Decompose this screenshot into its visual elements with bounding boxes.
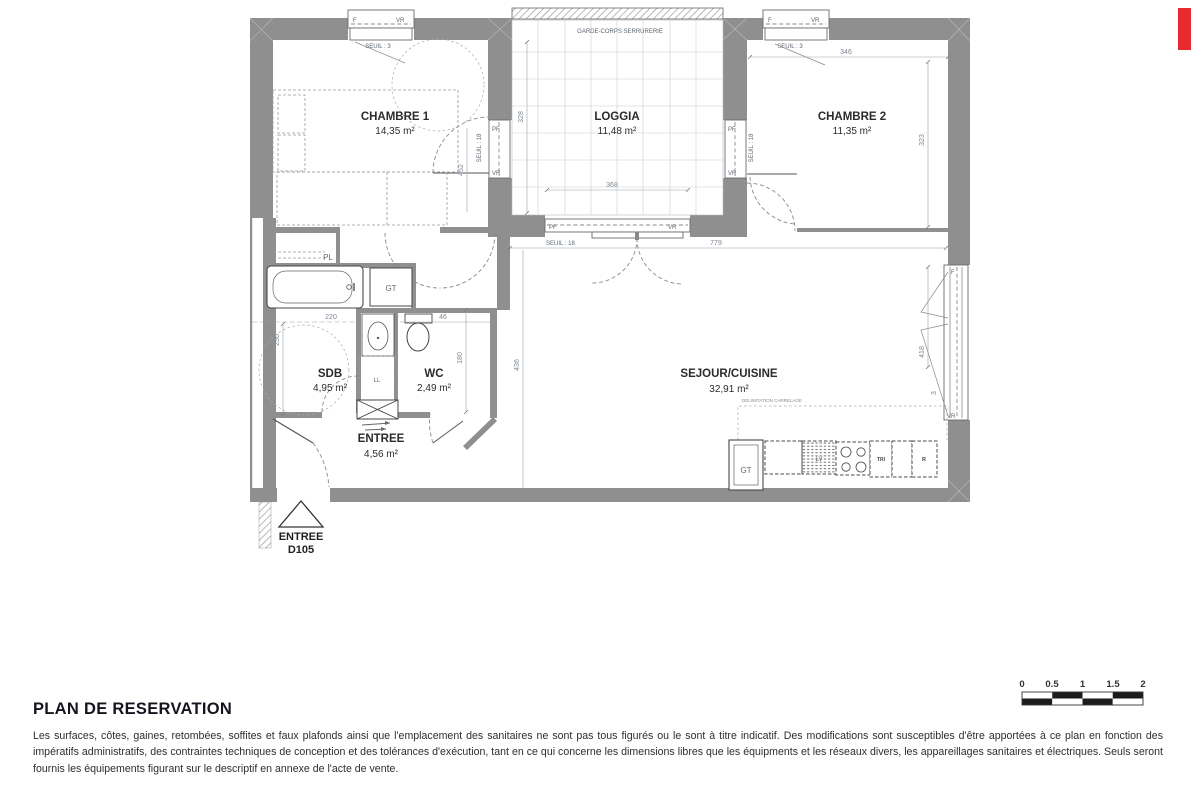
- room-area-wc: 2,49 m²: [417, 383, 452, 394]
- seuil-label: SEUIL : 18: [546, 241, 575, 247]
- dim-sejour-bay: 418: [919, 346, 926, 358]
- counter-sink: [765, 441, 802, 474]
- toilet-bowl: [407, 323, 429, 351]
- dim-sejour-bay-gap: 3: [931, 391, 938, 395]
- chambre1-door-arc2: [440, 233, 495, 288]
- dim-wc-width: 46: [439, 314, 447, 321]
- room-name-sdb: SDB: [318, 368, 342, 380]
- entry-hatch: [357, 400, 398, 431]
- counter-unit: [892, 441, 912, 477]
- plan-disclaimer: Les surfaces, côtes, gaines, retombées, …: [33, 728, 1163, 777]
- room-area-sdb: 4,95 m²: [313, 383, 348, 394]
- dim-chambre2-width: 346: [840, 49, 852, 56]
- window-vr-label: VR: [668, 225, 677, 231]
- bathtub: [267, 266, 363, 308]
- tri-label: TRI: [877, 457, 886, 463]
- room-area-chambre1: 14,35 m²: [375, 126, 415, 137]
- window-pf-label: PF: [492, 127, 500, 133]
- title-block: PLAN DE RESERVATION Les surfaces, côtes,…: [33, 700, 1163, 777]
- room-name-chambre2: CHAMBRE 2: [818, 111, 886, 123]
- delimitation-label: DELIMITATION CARRELAGE: [742, 398, 802, 403]
- dim-sdb-depth: 250: [274, 334, 281, 346]
- entrance-label: ENTREE: [279, 531, 324, 543]
- placard: PL: [273, 252, 333, 262]
- french-door-swing-right: [637, 238, 683, 284]
- cooktop: [836, 442, 870, 475]
- window-pf-label: PF: [728, 127, 736, 133]
- seuil-label: SEUIL : 18: [477, 133, 483, 162]
- gt-label: GT: [740, 466, 751, 475]
- dim-sejour-depth: 436: [514, 359, 521, 371]
- floor-plan-drawing: GARDE-CORPS SERRURERIE F VR SEUIL : 3 F …: [0, 0, 1193, 800]
- scale-tick-1: 1: [1080, 679, 1086, 690]
- room-area-entree: 4,56 m²: [364, 449, 399, 460]
- dim-chambre2-depth: 323: [919, 134, 926, 146]
- bathroom-fixtures: GT LL: [267, 266, 432, 431]
- french-door-swing-left: [592, 238, 637, 283]
- seuil-label: SEUIL : 18: [749, 133, 755, 162]
- sdb-door-arc: [322, 376, 358, 412]
- dim-wc-depth: 180: [457, 352, 464, 364]
- scale-tick-05: 0.5: [1045, 679, 1059, 690]
- window-vr-label: VR: [811, 18, 820, 24]
- window-loggia-bottom: PF VR SEUIL : 18: [545, 219, 690, 284]
- logo-red-mark: [1178, 8, 1191, 50]
- window-f-label: F: [951, 270, 955, 276]
- window-f-label: F: [353, 18, 357, 24]
- toilet-tank: [405, 314, 432, 323]
- kitchen: DELIMITATION CARRELAGE GT LV TRI R: [729, 398, 947, 490]
- window-chambre1-top: F VR SEUIL : 3: [348, 10, 414, 63]
- scale-tick-0: 0: [1019, 679, 1024, 690]
- gt-label: GT: [385, 284, 396, 293]
- dim-loggia-depth: 328: [518, 111, 525, 123]
- scale-tick-15: 1.5: [1106, 679, 1120, 690]
- room-name-wc: WC: [424, 368, 443, 380]
- room-name-sejour: SEJOUR/CUISINE: [680, 368, 777, 380]
- garde-corps-railing: [512, 8, 723, 19]
- fridge-label: R: [922, 457, 926, 463]
- tile-delimitation-line: [738, 406, 947, 440]
- window-vr-label: VR: [947, 414, 956, 420]
- room-name-chambre1: CHAMBRE 1: [361, 111, 430, 123]
- dim-sdb-width: 220: [325, 314, 337, 321]
- placard-label: PL: [323, 253, 333, 262]
- window-f-label: F: [768, 18, 772, 24]
- entrance-triangle: [279, 501, 323, 527]
- entrance-unit: D105: [288, 544, 314, 556]
- room-area-loggia: 11,48 m²: [598, 126, 637, 137]
- party-wall-stub: [259, 502, 271, 548]
- dim-loggia-width: 368: [606, 182, 618, 189]
- angled-wall: [463, 417, 497, 450]
- room-area-chambre2: 11,35 m²: [833, 126, 872, 137]
- seuil-label: SEUIL : 3: [365, 44, 391, 50]
- window-vr-label: VR: [492, 171, 501, 177]
- window-loggia-right: PF VR SEUIL : 18: [725, 120, 755, 178]
- room-area-sejour: 32,91 m²: [709, 384, 749, 395]
- chambre2-door-arc: [747, 183, 795, 231]
- dim-sejour-width: 779: [710, 240, 722, 247]
- window-vr-label: VR: [396, 18, 405, 24]
- scale-tick-2: 2: [1140, 679, 1145, 690]
- dim-chambre1-bay: 452: [458, 164, 465, 176]
- room-name-entree: ENTREE: [358, 433, 405, 445]
- room-name-loggia: LOGGIA: [594, 111, 639, 123]
- garde-corps-label: GARDE-CORPS SERRURERIE: [577, 29, 663, 35]
- entrance-marker: ENTREE D105: [279, 501, 324, 556]
- window-pf-label: PF: [549, 225, 557, 231]
- seuil-label: SEUIL : 3: [777, 44, 803, 50]
- ll-label: LL: [374, 378, 381, 384]
- floor-plan-page: GARDE-CORPS SERRURERIE F VR SEUIL : 3 F …: [0, 0, 1193, 800]
- entrance-door-arc: [313, 443, 329, 487]
- window-loggia-left: PF VR SEUIL : 18: [477, 120, 510, 178]
- plan-title: PLAN DE RESERVATION: [33, 700, 1163, 719]
- lv-label: LV: [816, 457, 823, 463]
- window-vr-label: VR: [728, 171, 737, 177]
